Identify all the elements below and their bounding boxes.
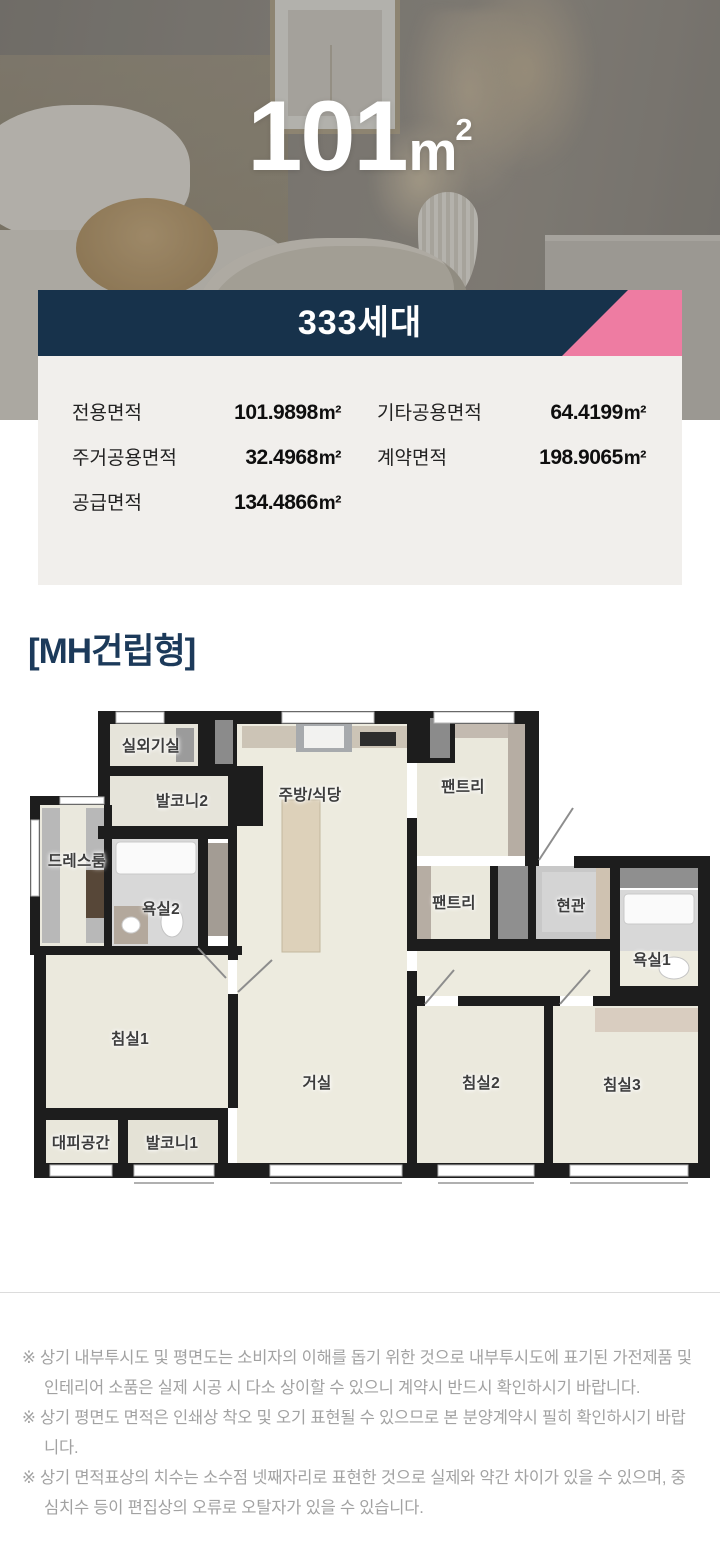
area-unit: m² (319, 493, 341, 514)
floor-plan-svg (30, 708, 710, 1193)
room-label: 욕실1 (633, 948, 671, 970)
room-label: 대피공간 (52, 1131, 110, 1153)
area-row: 기타공용면적 64.4199m² (377, 398, 646, 424)
disclaimer-item: ※ 상기 면적표상의 치수는 소수점 넷째자리로 표현한 것으로 실제와 약간 … (22, 1463, 700, 1523)
room-label: 침실3 (603, 1073, 641, 1095)
area-card: 전용면적 101.9898m² 주거공용면적 32.4968m² 공급면적 13… (38, 356, 682, 585)
room-label: 욕실2 (142, 897, 180, 919)
area-row: 전용면적 101.9898m² (72, 398, 341, 424)
room-label: 침실1 (111, 1027, 149, 1049)
room-label: 주방/식당 (279, 783, 342, 805)
area-table-left-column: 전용면적 101.9898m² 주거공용면적 32.4968m² 공급면적 13… (72, 398, 341, 514)
section-divider (0, 1292, 720, 1293)
households-count: 333세대 (38, 290, 682, 356)
unit-size-title: 101m2 (0, 86, 720, 185)
area-value: 64.4199m² (495, 401, 646, 425)
room-label: 거실 (302, 1071, 331, 1093)
plan-type-heading: [MH건립형] (28, 623, 720, 674)
room-label: 현관 (556, 894, 585, 916)
area-row: 계약면적 198.9065m² (377, 443, 646, 469)
room-label: 드레스룸 (48, 849, 106, 871)
households-banner: 333세대 (38, 290, 682, 356)
room-label: 실외기실 (122, 734, 180, 756)
unit-size-superscript: 2 (455, 114, 472, 145)
disclaimer-item: ※ 상기 평면도 면적은 인쇄상 착오 및 오기 표현될 수 있으므로 본 분양… (22, 1403, 700, 1463)
area-unit: m² (624, 448, 646, 469)
area-label: 공급면적 (72, 488, 190, 515)
area-label: 계약면적 (377, 443, 495, 470)
area-value: 101.9898m² (190, 401, 341, 425)
floor-plan: 실외기실발코니2주방/식당팬트리드레스룸욕실2팬트리현관욕실1침실1거실침실2침… (30, 708, 710, 1193)
unit-size-number: 101 (247, 86, 406, 185)
area-label: 기타공용면적 (377, 398, 495, 425)
room-label: 발코니2 (156, 789, 209, 811)
area-label: 전용면적 (72, 398, 190, 425)
area-row: 공급면적 134.4866m² (72, 488, 341, 514)
disclaimer-list: ※ 상기 내부투시도 및 평면도는 소비자의 이해를 돕기 위한 것으로 내부투… (0, 1343, 720, 1523)
room-label: 침실2 (462, 1071, 500, 1093)
area-row: 주거공용면적 32.4968m² (72, 443, 341, 469)
area-unit: m² (624, 403, 646, 424)
area-unit: m² (319, 403, 341, 424)
area-unit: m² (319, 448, 341, 469)
top-section: 101m2 333세대 전용면적 101.9898m² 주거공용면적 32.49… (0, 0, 720, 585)
wall-storage-inset (430, 718, 450, 758)
area-label: 주거공용면적 (72, 443, 190, 470)
page: { "hero": { "size_number": "101", "size_… (0, 0, 720, 1559)
area-value: 198.9065m² (495, 446, 646, 470)
wall-storage-inset (215, 720, 233, 764)
unit-size-unit: m (409, 124, 456, 179)
room-label: 발코니1 (146, 1131, 199, 1153)
area-value: 32.4968m² (190, 446, 341, 470)
disclaimer-item: ※ 상기 내부투시도 및 평면도는 소비자의 이해를 돕기 위한 것으로 내부투… (22, 1343, 700, 1403)
room-label: 팬트리 (432, 891, 476, 913)
area-table-right-column: 기타공용면적 64.4199m² 계약면적 198.9065m² (377, 398, 646, 514)
room-label: 팬트리 (441, 775, 485, 797)
area-value: 134.4866m² (190, 491, 341, 515)
area-table: 전용면적 101.9898m² 주거공용면적 32.4968m² 공급면적 13… (38, 356, 682, 514)
